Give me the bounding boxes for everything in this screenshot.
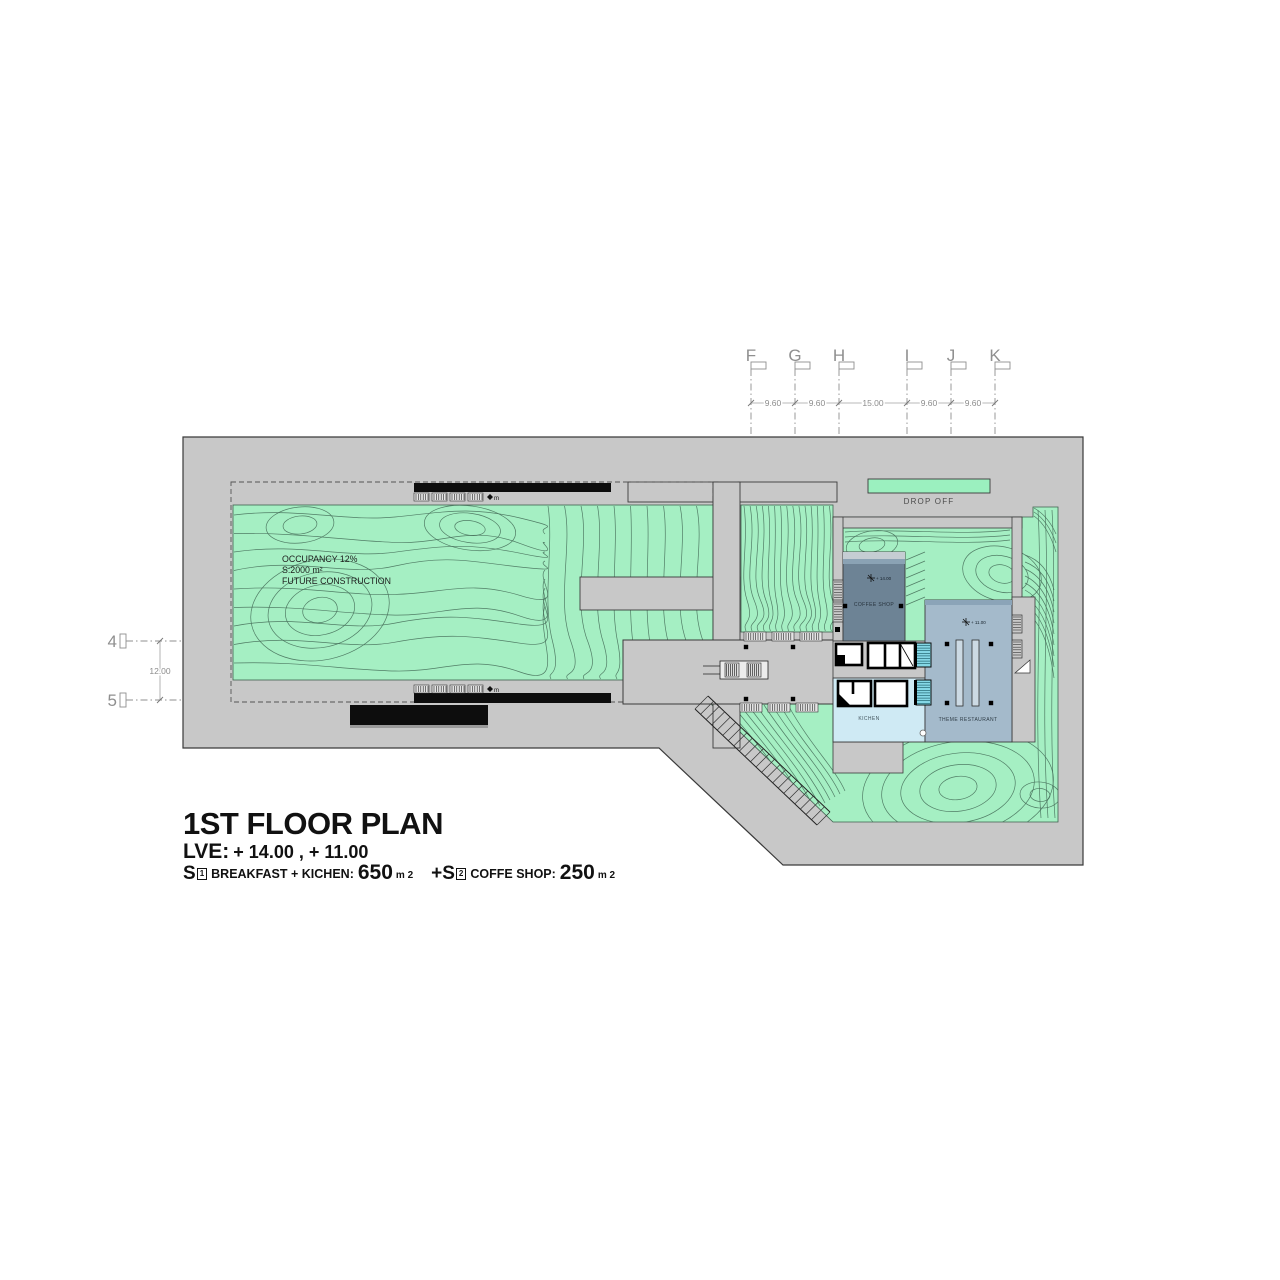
floor-plan-canvas: KICHEN + 14.00 COFFEE SHOP + 11.00 THEME… [0, 0, 1280, 1280]
dim-I-J: 9.60 [921, 398, 938, 408]
legend-s2-label: COFFE SHOP: [470, 868, 555, 881]
legend-line: S 1 BREAKFAST + KICHEN: 650 m 2 +S 2 COF… [183, 864, 615, 882]
legend-s2-value: 250 [560, 864, 595, 882]
title-block: 1ST FLOOR PLAN LVE: + 14.00 , + 11.00 S … [183, 808, 615, 882]
louver-marker-label: m [494, 688, 499, 694]
dim-4-5: 12.00 [149, 666, 171, 676]
landscape-mid-strip [741, 505, 833, 632]
kitchen-south-terrace [833, 742, 903, 773]
courtyard-frame-top [833, 517, 1022, 528]
plan-title: 1ST FLOOR PLAN [183, 808, 615, 839]
shade-bar-detached-base [350, 725, 488, 728]
legend-s1-label: BREAKFAST + KICHEN: [211, 868, 354, 881]
door-pivot [920, 730, 926, 736]
legend-s1-value: 650 [358, 864, 393, 882]
dim-J-K: 9.60 [965, 398, 982, 408]
drop-off-zone [868, 479, 990, 493]
dim-H-I: 15.00 [862, 398, 884, 408]
drop-off-label: DROP OFF [904, 497, 955, 506]
occupancy-line1: OCCUPANCY 12% [282, 554, 358, 564]
shade-bar-south [414, 693, 611, 703]
legend-s2-prefix: +S [431, 866, 455, 882]
kitchen-label: KICHEN [858, 716, 879, 722]
drawing-sheet: KICHEN + 14.00 COFFEE SHOP + 11.00 THEME… [0, 0, 1280, 1280]
restaurant-label: THEME RESTAURANT [939, 717, 998, 723]
legend-s2-unit: m 2 [598, 871, 615, 881]
legend-s1-unit: m 2 [396, 871, 413, 881]
roof-outline-east [738, 482, 837, 502]
legend-s2-box: 2 [456, 868, 466, 880]
legend-s1-box: 1 [197, 868, 207, 880]
level-line: LVE: + 14.00 , + 11.00 [183, 842, 615, 862]
grid-row-4: 4 [108, 632, 117, 651]
room-theme-restaurant: + 11.00 THEME RESTAURANT [925, 600, 1012, 742]
level-label: LVE: [183, 842, 229, 862]
roof-outline-west [628, 482, 718, 502]
dim-G-H: 9.60 [809, 398, 826, 408]
coffee-level: + 14.00 [876, 576, 892, 581]
level-value: + 14.00 , + 11.00 [233, 843, 368, 862]
shade-bar-detached [350, 705, 488, 725]
louver-marker-label: m [494, 496, 499, 502]
room-coffee-shop: + 14.00 COFFEE SHOP [843, 552, 905, 641]
grid-row-5: 5 [108, 691, 117, 710]
occupancy-line3: FUTURE CONSTRUCTION [282, 576, 391, 586]
occupancy-line2: S:2000 m² [282, 565, 323, 575]
restaurant-level: + 11.00 [971, 620, 986, 625]
legend-s1-prefix: S [183, 866, 196, 882]
courtyard-frame-right [1012, 517, 1022, 601]
coffee-label: COFFEE SHOP [854, 602, 895, 608]
courtyard-frame-left [833, 517, 843, 641]
dim-F-G: 9.60 [765, 398, 782, 408]
shade-bar-north [414, 483, 611, 492]
